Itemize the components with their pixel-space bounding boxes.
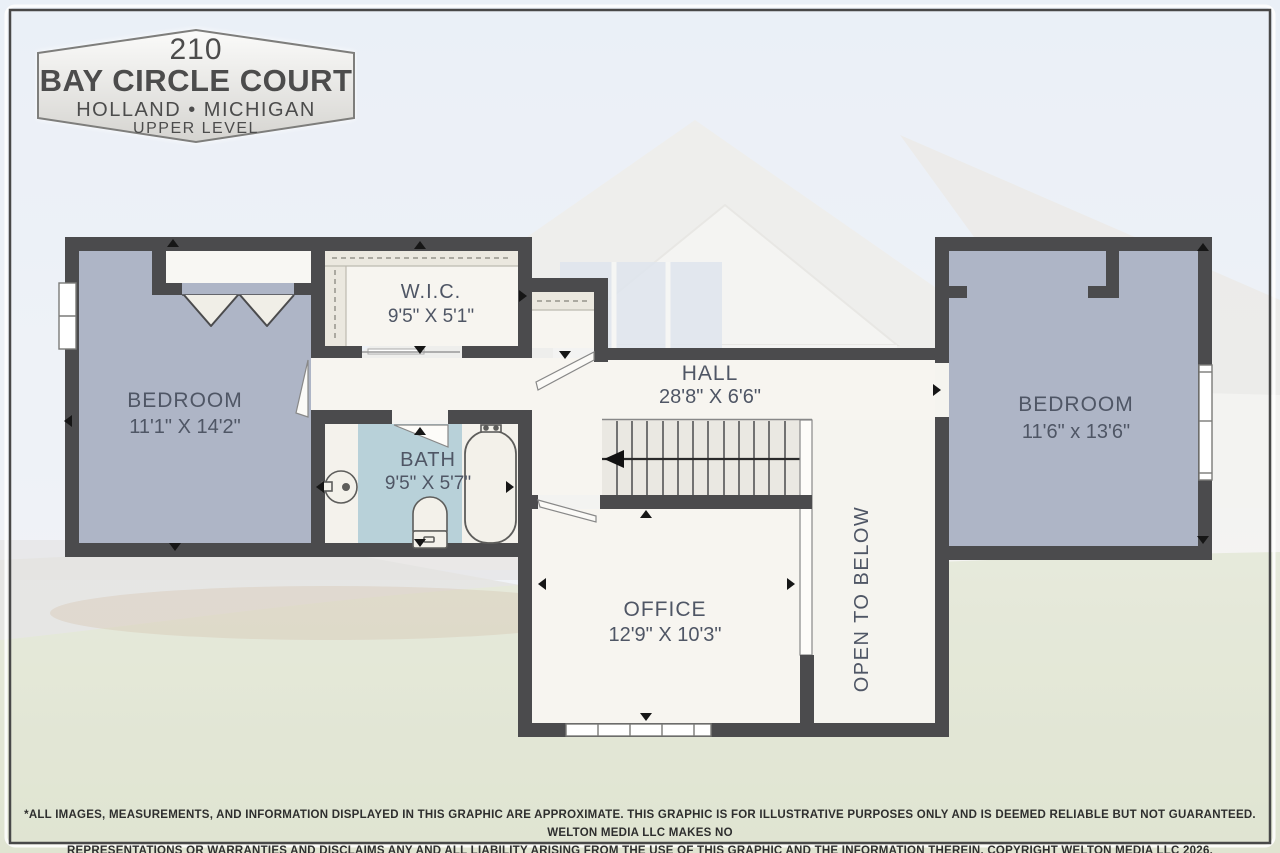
room-dims-office: 12'9" X 10'3" (608, 624, 721, 646)
wall (311, 346, 362, 358)
street-name: BAY CIRCLE COURT (40, 65, 353, 97)
disclaimer: *ALL IMAGES, MEASUREMENTS, AND INFORMATI… (20, 807, 1260, 853)
wall (800, 655, 814, 737)
floor-plan-graphic: BEDROOM 11'1" X 14'2" W.I.C. 9'5" X 5'1"… (0, 0, 1280, 853)
wall (935, 237, 1212, 251)
wall (935, 237, 949, 363)
wall (65, 237, 532, 251)
hall-floor (311, 358, 949, 420)
wall (935, 417, 949, 737)
room-dims-bath: 9'5" X 5'7" (385, 473, 471, 494)
window (566, 724, 711, 736)
wall (935, 546, 1212, 560)
wall (601, 348, 935, 360)
wall (311, 410, 392, 424)
wall-stub (1088, 286, 1106, 298)
toilet-icon (413, 497, 447, 531)
room-fills (79, 249, 1198, 723)
wall (518, 495, 532, 737)
room-label-wic: W.I.C. (401, 281, 461, 303)
wall (65, 543, 532, 557)
room-dims-hall: 28'8" X 6'6" (659, 386, 761, 408)
disclaimer-line-2: REPRESENTATIONS OR WARRANTIES AND DISCLA… (20, 843, 1260, 853)
wall (462, 346, 532, 358)
room-label-hall: HALL (682, 362, 739, 385)
room-dims-bedroom-left: 11'1" X 14'2" (129, 416, 241, 438)
sink-drain-icon (343, 484, 349, 490)
room-dims-wic: 9'5" X 5'1" (388, 306, 474, 327)
title-badge-text: 210 BAY CIRCLE COURT HOLLAND • MICHIGAN … (35, 26, 357, 146)
wall (152, 283, 182, 295)
stair-railing (800, 420, 812, 655)
title-badge: 210 BAY CIRCLE COURT HOLLAND • MICHIGAN … (35, 26, 357, 146)
room-label-bedroom-right: BEDROOM (1018, 393, 1134, 416)
wall (600, 495, 812, 509)
wall-stub (1106, 251, 1119, 298)
bedroom-closet-floor (158, 251, 311, 283)
wall (294, 283, 311, 295)
disclaimer-line-1: *ALL IMAGES, MEASUREMENTS, AND INFORMATI… (20, 807, 1260, 843)
window (1199, 365, 1212, 480)
level-label: UPPER LEVEL (133, 121, 259, 138)
wall-stub (949, 286, 967, 298)
room-label-open-to-below: OPEN TO BELOW (851, 506, 873, 693)
room-dims-bedroom-right: 11'6" x 13'6" (1022, 421, 1130, 443)
city-state: HOLLAND • MICHIGAN (76, 100, 316, 121)
open-to-below-floor (812, 420, 935, 723)
room-label-bedroom-left: BEDROOM (127, 389, 243, 412)
room-label-office: OFFICE (624, 598, 707, 621)
address-number: 210 (169, 34, 222, 65)
wall (311, 237, 325, 358)
room-label-bath: BATH (400, 449, 456, 471)
